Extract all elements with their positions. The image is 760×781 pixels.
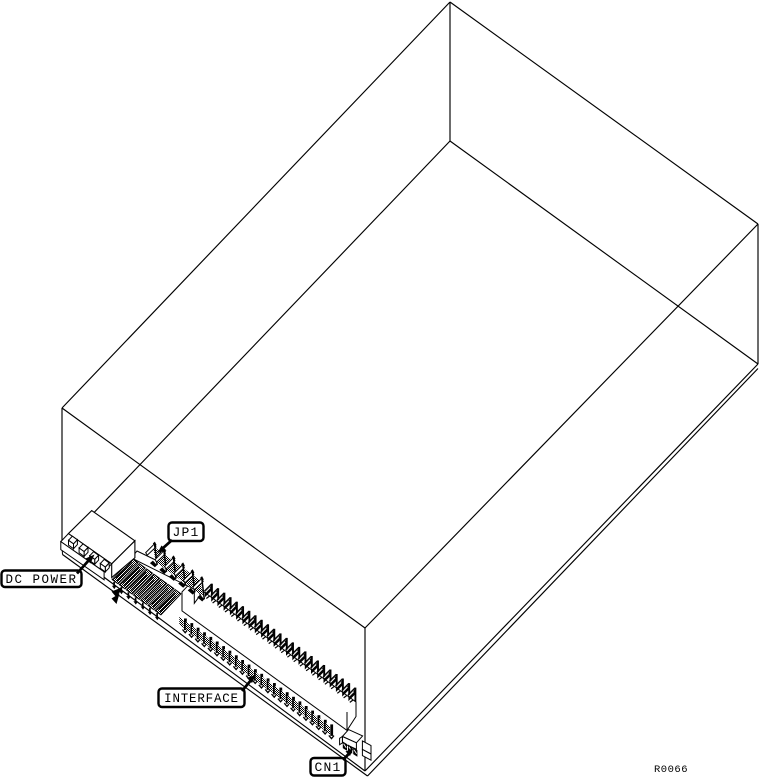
svg-text:DC POWER: DC POWER (5, 573, 77, 587)
svg-text:R0066: R0066 (654, 764, 688, 776)
svg-text:JP1: JP1 (172, 525, 199, 540)
svg-text:CN1: CN1 (314, 760, 341, 775)
svg-text:INTERFACE: INTERFACE (164, 692, 239, 706)
